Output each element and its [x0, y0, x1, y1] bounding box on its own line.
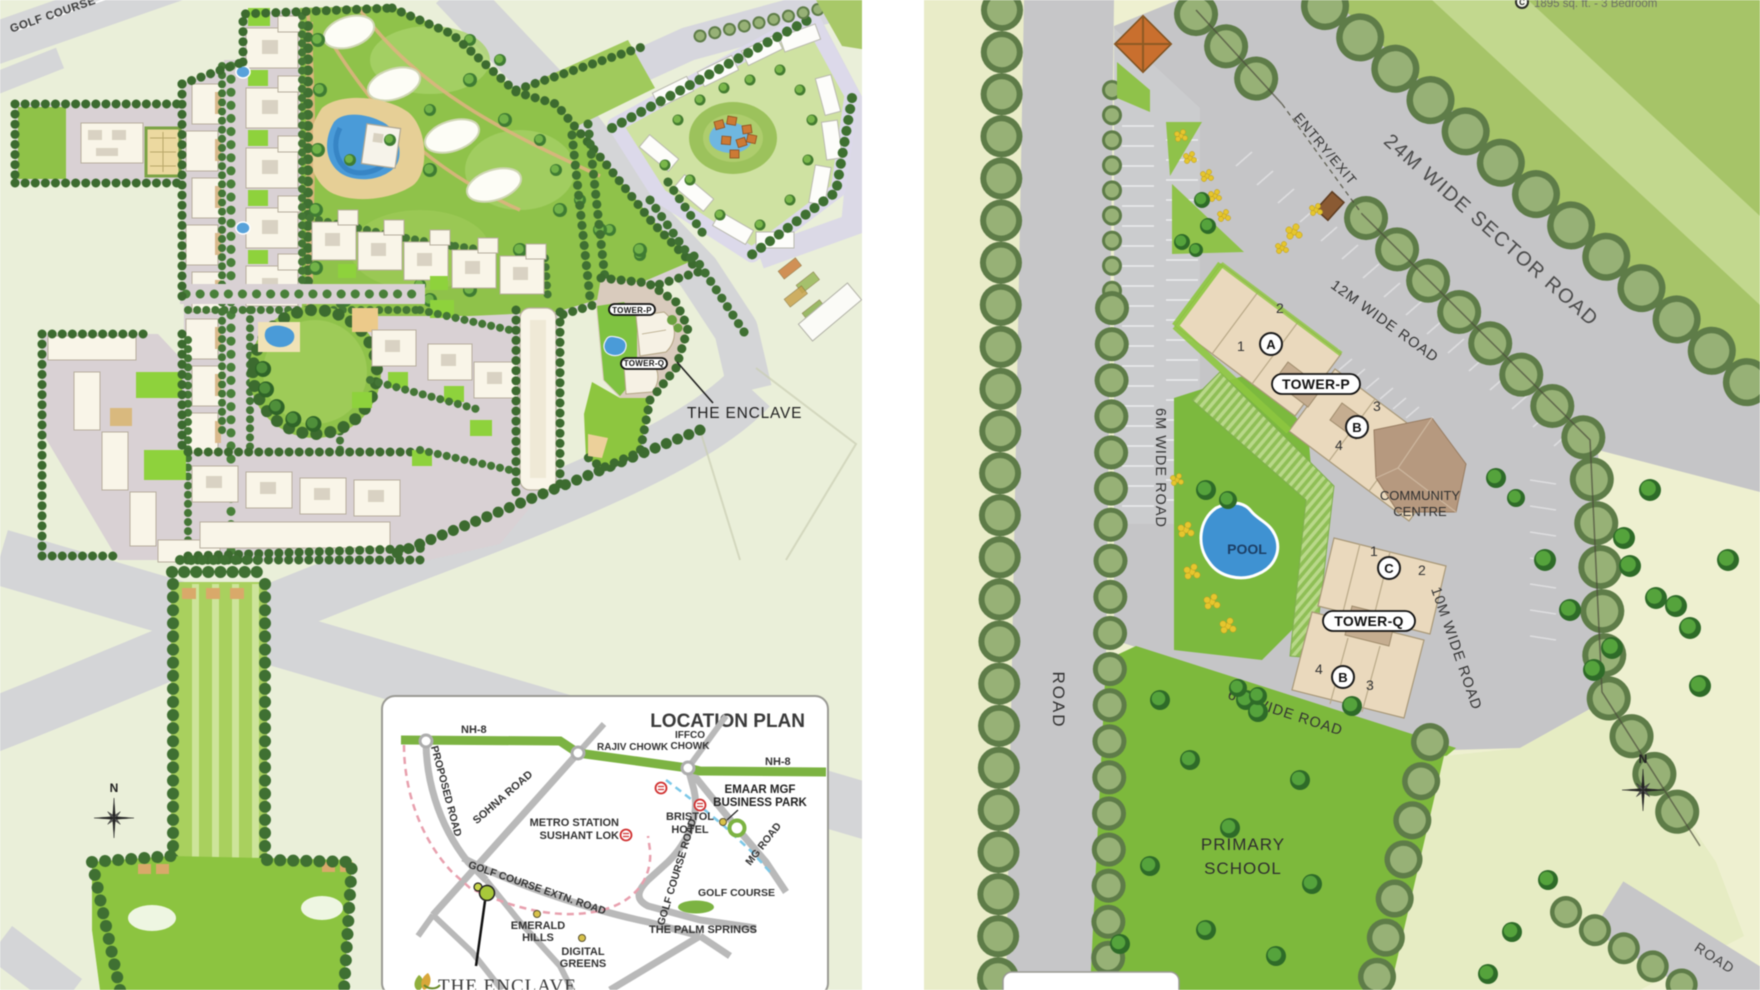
svg-text:EMERALD: EMERALD — [511, 920, 565, 932]
svg-text:4: 4 — [1315, 661, 1323, 677]
svg-text:METRO STATION: METRO STATION — [530, 817, 619, 829]
svg-text:A: A — [1266, 337, 1276, 352]
svg-text:SUSHANT LOK: SUSHANT LOK — [540, 830, 620, 842]
svg-text:HOTEL: HOTEL — [671, 824, 709, 836]
svg-text:TOWER-P: TOWER-P — [612, 306, 652, 315]
svg-text:B: B — [1338, 670, 1347, 685]
svg-text:HILLS: HILLS — [522, 932, 554, 944]
svg-text:DIGITAL: DIGITAL — [561, 946, 604, 958]
svg-text:LOCATION PLAN: LOCATION PLAN — [650, 711, 805, 732]
svg-text:POOL: POOL — [1227, 541, 1267, 557]
svg-text:CHOWK: CHOWK — [671, 741, 711, 752]
svg-text:SCHOOL: SCHOOL — [1204, 859, 1282, 878]
svg-text:NH-8: NH-8 — [765, 756, 791, 768]
svg-text:TOWER-Q: TOWER-Q — [1334, 613, 1404, 629]
svg-text:1: 1 — [1237, 338, 1245, 354]
svg-text:THE ENCLAVE: THE ENCLAVE — [687, 405, 802, 422]
svg-text:THE PALM SPRINGS: THE PALM SPRINGS — [649, 924, 757, 936]
svg-text:BRISTOL: BRISTOL — [666, 811, 714, 823]
svg-text:RAJIV CHOWK: RAJIV CHOWK — [597, 742, 669, 753]
svg-text:4: 4 — [1335, 437, 1343, 453]
svg-text:6M WIDE ROAD: 6M WIDE ROAD — [1152, 408, 1168, 528]
svg-text:TOWER-P: TOWER-P — [1282, 376, 1350, 392]
svg-text:B: B — [1352, 420, 1361, 435]
svg-text:2: 2 — [1276, 300, 1284, 316]
svg-text:EMAAR MGF: EMAAR MGF — [725, 784, 796, 796]
svg-text:THE ENCLAVE: THE ENCLAVE — [438, 976, 577, 990]
svg-text:1895 sq. ft. - 3 Bedroom: 1895 sq. ft. - 3 Bedroom — [1534, 0, 1657, 10]
svg-text:3: 3 — [1373, 398, 1381, 414]
svg-text:IFFCO: IFFCO — [675, 730, 705, 741]
svg-text:C: C — [1384, 561, 1394, 576]
svg-text:GREENS: GREENS — [560, 958, 606, 970]
svg-text:BUSINESS PARK: BUSINESS PARK — [713, 797, 807, 809]
svg-text:ROAD: ROAD — [1049, 671, 1068, 728]
svg-text:1: 1 — [1370, 543, 1378, 559]
svg-text:GOLF COURSE: GOLF COURSE — [698, 887, 775, 899]
svg-text:N: N — [1639, 752, 1648, 766]
svg-text:C: C — [1519, 0, 1525, 7]
svg-text:PRIMARY: PRIMARY — [1201, 835, 1285, 854]
svg-text:CENTRE: CENTRE — [1393, 504, 1447, 519]
svg-text:3: 3 — [1366, 677, 1374, 693]
svg-text:COMMUNITY: COMMUNITY — [1380, 488, 1460, 503]
svg-text:TOWER-Q: TOWER-Q — [624, 359, 665, 368]
svg-text:N: N — [110, 781, 119, 795]
svg-text:NH-8: NH-8 — [461, 724, 487, 736]
svg-text:2: 2 — [1418, 562, 1426, 578]
